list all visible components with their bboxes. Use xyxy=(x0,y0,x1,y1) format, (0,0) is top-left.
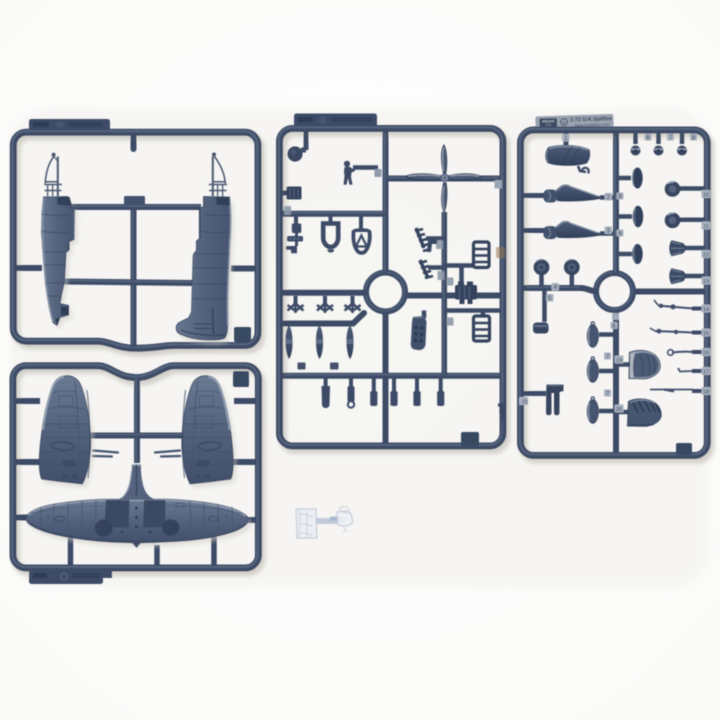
svg-text:11: 11 xyxy=(703,224,709,230)
svg-text:18: 18 xyxy=(703,389,709,395)
svg-text:16: 16 xyxy=(703,350,709,356)
svg-text:12: 12 xyxy=(703,252,709,258)
svg-text:15: 15 xyxy=(703,331,709,337)
svg-text:17: 17 xyxy=(703,369,709,375)
svg-text:21: 21 xyxy=(522,399,528,405)
svg-text:13: 13 xyxy=(703,279,709,285)
svg-text:1/72: 1/72 xyxy=(545,123,551,127)
svg-text:10: 10 xyxy=(703,192,709,198)
svg-text:14: 14 xyxy=(703,307,709,313)
svg-text:19: 19 xyxy=(616,358,622,364)
svg-text:o: o xyxy=(563,120,566,126)
svg-text:20: 20 xyxy=(616,407,622,413)
